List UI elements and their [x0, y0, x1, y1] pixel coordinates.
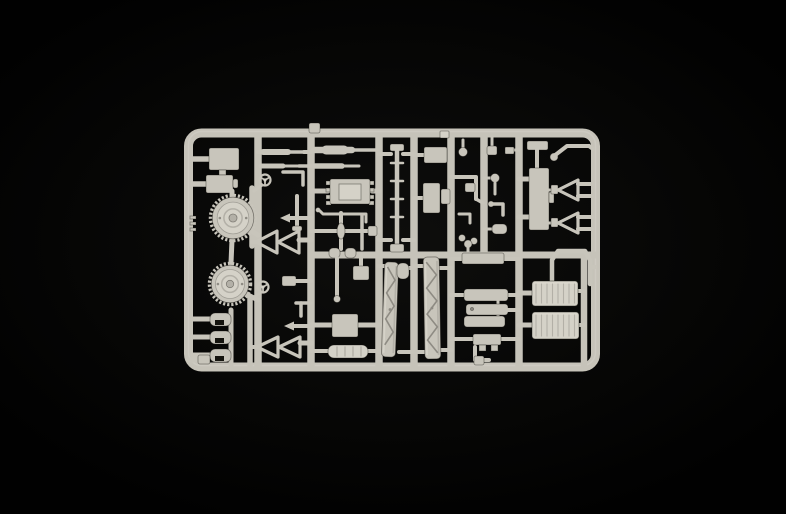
rod-end [334, 296, 341, 303]
bracket-pad [465, 183, 475, 192]
tread-panel [532, 281, 578, 306]
box-part [206, 175, 233, 193]
rod-part [283, 172, 303, 185]
gate-mark [440, 131, 449, 138]
clamp-slot [215, 320, 224, 325]
small-block [282, 276, 296, 286]
knob-part [487, 146, 497, 155]
box-tab [441, 189, 450, 204]
arrow-part [284, 322, 294, 331]
clamp-part [329, 248, 340, 258]
box-part [209, 148, 239, 170]
clamp-slot [215, 338, 224, 343]
gear-wheel [210, 264, 251, 305]
rail-nub [190, 228, 196, 231]
tall-box [529, 168, 549, 230]
rod-part [554, 146, 589, 156]
rail-nub [190, 216, 196, 219]
jack-brace [558, 180, 578, 200]
photo-canvas [0, 0, 786, 514]
small-block [505, 147, 514, 154]
bar-tab [491, 345, 498, 351]
gear-wheel [211, 196, 256, 241]
box-tab [233, 179, 238, 188]
arrow-part [280, 214, 290, 223]
bar-part [462, 253, 504, 264]
hook-part [492, 204, 503, 215]
bar-part [464, 289, 508, 301]
small-block [474, 356, 484, 365]
small-block [198, 355, 210, 364]
muffler-part [328, 345, 368, 358]
sprue-photo [0, 0, 786, 514]
clamp-part [345, 248, 356, 258]
shaft-cap [390, 244, 404, 252]
gate-tab [309, 123, 320, 133]
stub [589, 146, 593, 149]
bar-part [464, 316, 505, 327]
boom-head [397, 263, 409, 279]
small-block [492, 224, 507, 234]
bar-part [473, 334, 501, 345]
box-part [424, 147, 447, 163]
jack-brace [558, 213, 578, 233]
breech-inner [339, 184, 361, 200]
bar-tab [479, 345, 486, 351]
rod-bulge [337, 223, 345, 239]
small-box [353, 266, 369, 280]
stub [231, 240, 232, 263]
lattice-boom [381, 262, 398, 357]
clamp-slot [215, 356, 224, 361]
box-tab [219, 170, 226, 175]
pin-head [491, 174, 500, 183]
rail-nub [190, 222, 196, 225]
pin-head [459, 235, 466, 242]
pin-head [459, 148, 468, 157]
lattice-boom [423, 257, 441, 359]
box-part [423, 183, 440, 213]
box-part [332, 314, 358, 337]
rod-end [368, 226, 377, 236]
triangle-brace [279, 337, 300, 357]
rivet [471, 308, 474, 311]
hook-part [459, 214, 470, 223]
tread-panel [532, 312, 579, 339]
triangle-brace [278, 231, 299, 253]
